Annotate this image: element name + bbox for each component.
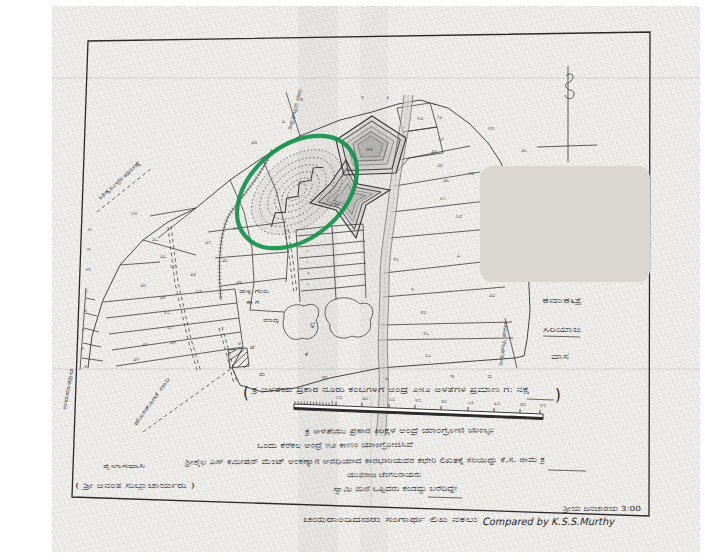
right-signature: ಶ್ರೀಯ ದಿನಚಾರಯ 3:00	[561, 505, 641, 513]
plot-number: ಳ	[310, 320, 315, 330]
plot-number: ೨೩	[521, 147, 527, 153]
plot-number: ೨೭	[160, 253, 166, 259]
plot-number: ೩೦	[164, 309, 170, 315]
plot-number: ೪೫	[488, 125, 494, 131]
plot-number: ೩೧	[170, 263, 176, 269]
plot-number: ೩೮	[456, 213, 462, 219]
plot-number: ೨೯	[160, 294, 166, 300]
plot-number: ೨೩	[142, 341, 148, 347]
plot-number: ೮	[84, 363, 87, 369]
map-label: ವಾಸ	[551, 353, 569, 361]
scanned-survey-map: ೮೪೨೬೭೨೮೩೫೨೬೨೭೩೧೨೫೨೨೨೧೨೩೨೪೩೪ಅಇಉ೧೨೩೪೮೨೯೩೦೩…	[0, 0, 724, 560]
bottom-kannada-note: ಚಯರಾಂಡಿದವರು ಸಂಗಾರ್ಥ ಲಿಖ ನಕಲು	[303, 515, 479, 524]
map-drawing: ೮೪೨೬೭೨೮೩೫೨೬೨೭೩೧೨೫೨೨೨೧೨೩೨೪೩೪ಅಇಉ೧೨೩೪೮೨೯೩೦೩…	[0, 0, 724, 560]
scale-tick-number: ೬೦	[468, 399, 474, 405]
plot-number: ಉ	[322, 373, 328, 380]
plot-number: ೪೨	[417, 115, 423, 121]
plot-number: ೨೩	[222, 257, 228, 263]
plot-number: ೨೩	[443, 177, 449, 183]
plot-number: ೪	[361, 94, 364, 100]
scale-paren-open: (	[243, 384, 249, 402]
plot-number: ಇ	[87, 246, 91, 252]
plot-number: ೩	[82, 326, 85, 332]
plot-number: ೧	[85, 288, 88, 294]
scale-caption: ಕ್ರ ಅಳತೆಯ ಪ್ರಕಾರ ನೂರು ಕಂಬಗಳಿಗೆ ಅಂದ್ರೆ ೨೫…	[250, 386, 530, 394]
map-label: ಜೆ	[250, 343, 255, 350]
map-label: ಹೊಸಕೋಟೆ ದಾರಿ	[132, 376, 171, 427]
plot-number: ೨೮	[437, 162, 443, 168]
map-label: ಈ ಗ	[246, 298, 259, 305]
scale-tick-number: ೩೦	[389, 396, 395, 402]
note-line: ಕ್ರ ಅಳತೆಯು ಪ್ರಕಾರ ಕಿರಿಕ್ಷಳ ಅಂದ್ರೆ ಯಾಂಗ್ರ…	[303, 425, 495, 437]
map-label: ಚಿಕ್ಕಬಳ್ಳಾಪುರಕ್ಕೆ	[97, 159, 143, 202]
plot-number: ೨೬	[152, 236, 158, 242]
plot-number: ೨೫	[431, 148, 437, 154]
plot-number: ೪೫	[420, 309, 426, 315]
plot-number: ೪	[81, 345, 84, 351]
map-label: ಶಿಡ್ಲಘಟ್ಟ ಕೆರೆಗೆ	[497, 320, 509, 366]
north-arrow	[537, 66, 597, 162]
scale-tick-number: ೯೦	[540, 402, 546, 408]
map-label: ಸಿರಿಯಾಜಿ	[543, 326, 581, 334]
plot-number: ೨೪	[170, 339, 176, 345]
plot-number: ೧೯	[438, 136, 444, 142]
plot-number: ಅ	[88, 226, 92, 232]
note-line: ಯುವರಾಜ ಚೆಂಗಲರಾಯರು	[347, 470, 422, 480]
plot-number: ಅ೪	[366, 145, 374, 152]
scale-tick-number: ೫೦	[441, 398, 447, 404]
plot-number: ಇ೫	[333, 200, 341, 207]
plot-number: ೬	[433, 100, 436, 106]
plot-number: ೭	[457, 252, 460, 258]
map-label: ಮ	[259, 370, 265, 377]
plot-number: ೩೧	[440, 195, 446, 201]
map-label: ಮಾವು	[263, 316, 279, 323]
note-line: ಸ್ವಾಮಿ ಮನೆ ಒಪ್ಪಿದರು ಕಂಡದ್ದು ಬರೆದಿದ್ದೇ	[333, 484, 458, 495]
plot-number: ೪	[411, 286, 414, 292]
plot-number: ೨೪	[236, 279, 242, 285]
left-signature-name: ( ಶ್ರೀ ಅನಂತ ಸುಬ್ಬಾಚಾರ್ಯರು )	[75, 482, 195, 490]
plot-number: ಅ	[238, 340, 242, 346]
plot-number: ೨೨	[190, 271, 196, 277]
compared-by-signature: Compared by K.S.S.Murthy	[482, 516, 615, 528]
scale-tick-number: ೧೦	[336, 394, 342, 400]
plot-number: ೨೫	[140, 282, 146, 288]
map-label: ನರಸಾಪುರ	[61, 368, 74, 411]
scale-tick-number: ೭೦	[494, 400, 500, 406]
plot-number: ೨೧	[205, 239, 211, 245]
scale-tick-number: ೨೦	[362, 395, 368, 401]
scale-paren-close: )	[555, 386, 561, 404]
plot-number: ೩೧	[167, 324, 173, 330]
scale-tick-number: ೮೦	[520, 401, 526, 407]
map-label: ಹಳ್ಳಿ ಗುಡಿ	[239, 287, 269, 295]
hatched-plot	[228, 348, 249, 368]
plot-number: ಲ	[385, 374, 389, 381]
plot-number: ೩೫	[131, 210, 137, 216]
scan-shade-band	[298, 6, 338, 552]
plot-number: ೨೪	[133, 356, 139, 362]
plot-number: ಉ	[86, 266, 91, 272]
plot-number: ೧೩	[437, 114, 443, 120]
plot-number: ೨	[84, 307, 87, 313]
plot-number: ೪೩	[393, 256, 399, 262]
map-label: ಕನಾಕಟ್ಟೆ	[542, 297, 582, 305]
plot-number: ೩೬	[425, 352, 431, 358]
plot-number: ಇ	[450, 372, 454, 379]
note-line: ಒಂದು ಕೆರೆಕಲ ಅಂದ್ರೆ ೫೨ ಕಾಣಂ ಯಾಂಗ್ರೋಜಿಸಿವೆ	[257, 440, 414, 450]
left-signature-title: ಕೈಲಾಸವಾಸಿ	[103, 462, 146, 470]
plot-number: ೧೮	[468, 170, 474, 176]
plot-number: ೪೬	[423, 330, 429, 336]
plot-number: ೨೮	[251, 139, 257, 145]
plot-number: ಡಿ	[488, 372, 492, 379]
plot-number: ೨೨	[489, 292, 495, 298]
plot-number: ೩೪	[196, 288, 202, 294]
plot-number: ೭	[282, 118, 285, 124]
redaction-overlay	[480, 166, 650, 282]
plot-number: ೨	[386, 94, 389, 100]
scale-tick-number: ೪೦	[415, 397, 421, 403]
